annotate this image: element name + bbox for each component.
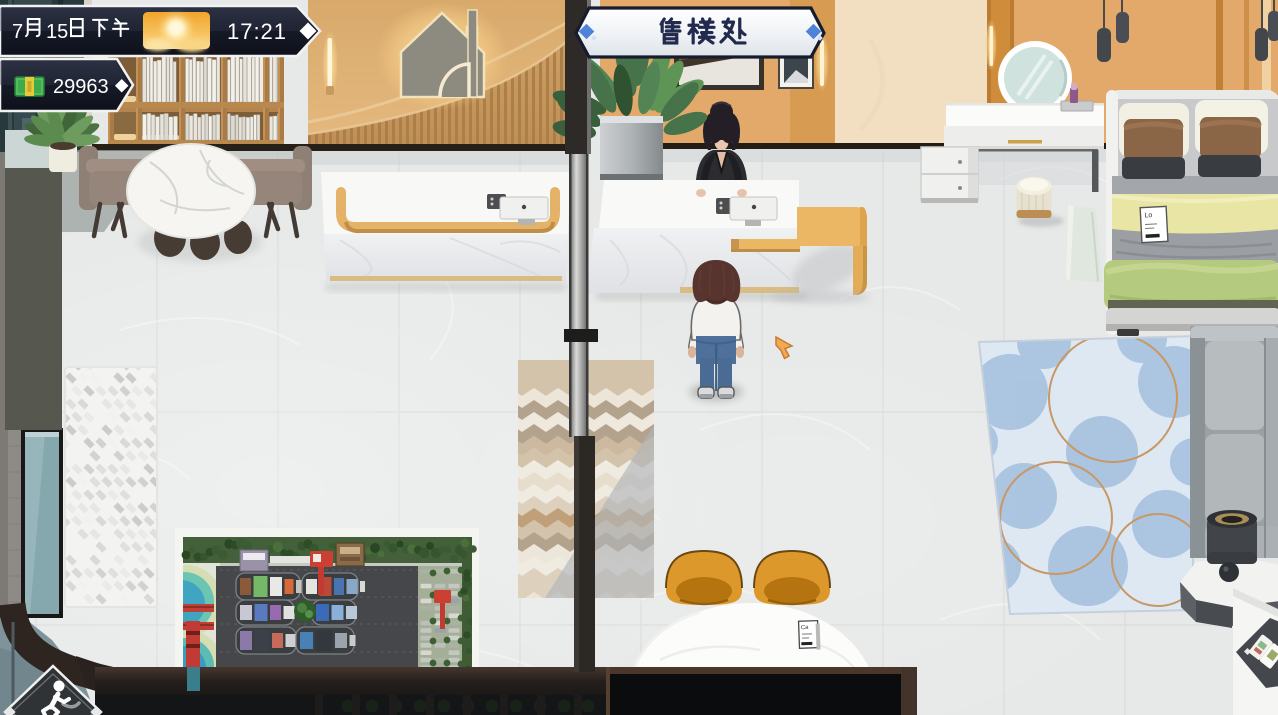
svg-text:17:21: 17:21 xyxy=(227,19,287,44)
svg-text:29963: 29963 xyxy=(53,76,109,98)
svg-text:15: 15 xyxy=(46,21,68,43)
svg-text:7: 7 xyxy=(12,21,23,43)
svg-text:Ca: Ca xyxy=(801,625,810,631)
svg-text:Lo: Lo xyxy=(1144,212,1152,219)
